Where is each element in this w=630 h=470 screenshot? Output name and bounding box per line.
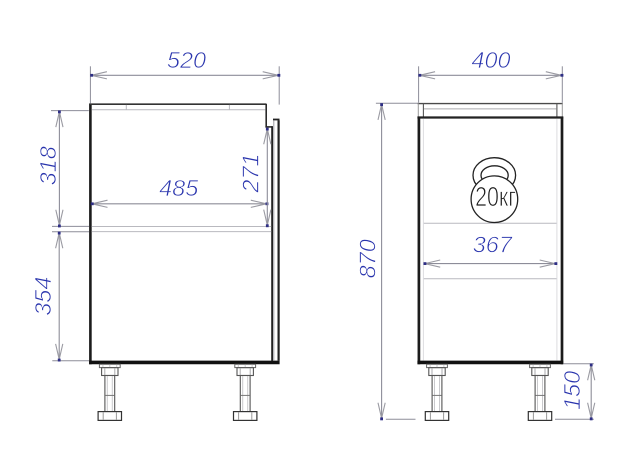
svg-text:20кг: 20кг bbox=[475, 183, 516, 213]
svg-text:354: 354 bbox=[30, 277, 56, 316]
svg-text:485: 485 bbox=[159, 175, 199, 201]
svg-text:367: 367 bbox=[473, 232, 513, 258]
svg-text:870: 870 bbox=[354, 239, 380, 278]
svg-text:271: 271 bbox=[238, 153, 264, 193]
svg-text:150: 150 bbox=[559, 371, 585, 410]
svg-text:520: 520 bbox=[167, 47, 206, 73]
svg-text:400: 400 bbox=[471, 47, 510, 73]
svg-text:318: 318 bbox=[35, 146, 61, 185]
